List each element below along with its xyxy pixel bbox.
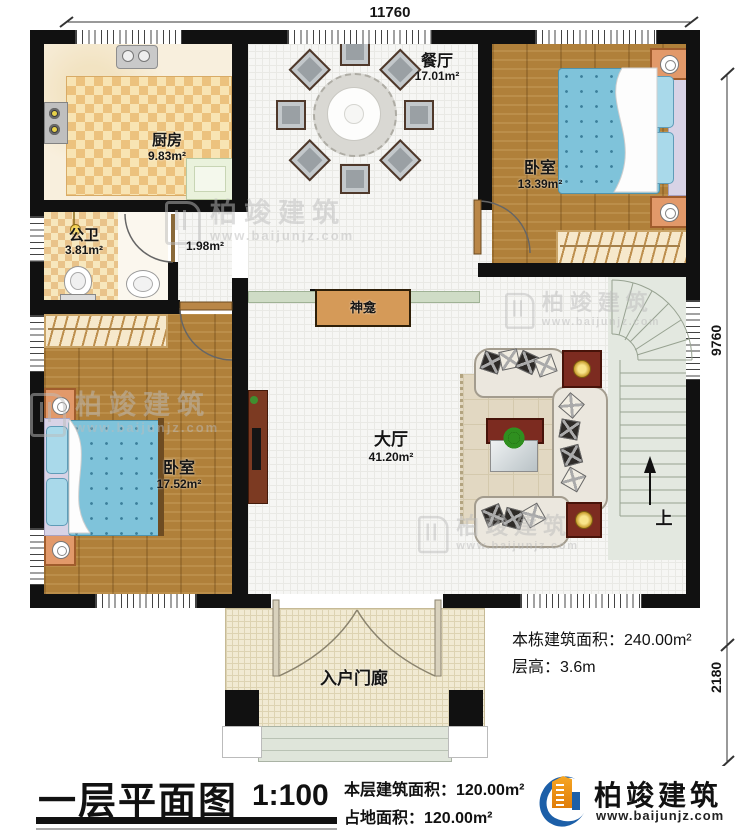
porch-door-leaf-left xyxy=(273,600,279,676)
brand-logo-icon xyxy=(538,772,588,826)
note-building-area: 本栋建筑面积：240.00m² xyxy=(512,626,692,650)
watermark-name: 柏竣建筑 xyxy=(75,392,219,419)
watermark: 柏竣建筑 www.baijunjz.com xyxy=(30,392,219,437)
watermark-logo-icon xyxy=(165,201,201,245)
bedroom-top-area: 13.39m² xyxy=(498,178,582,191)
floor-area-label: 本层建筑面积：120.00m² xyxy=(344,776,525,800)
bedroom-top-label: 卧室 xyxy=(505,160,575,178)
plan-linework xyxy=(0,0,750,766)
land-area-label: 占地面积：120.00m² xyxy=(344,804,493,828)
stairs-up-label: 上 xyxy=(650,510,678,529)
kitchen-label: 厨房 xyxy=(127,133,207,150)
note-floor-height: 层高：3.6m xyxy=(512,653,596,677)
dimension-right-porch: 2180 xyxy=(709,644,727,710)
brand-site: www.baijunjz.com xyxy=(596,808,724,823)
watermark-logo-icon xyxy=(505,292,535,328)
dining-label: 餐厅 xyxy=(407,53,467,71)
bedroom-left-area: 17.52m² xyxy=(137,478,221,491)
hallway-area: 1.98m² xyxy=(172,240,238,253)
bed-top-blanket xyxy=(614,68,657,192)
watermark-site: www.baijunjz.com xyxy=(456,538,579,553)
bedroom-left-door-leaf xyxy=(180,302,232,310)
bathroom-area: 3.81m² xyxy=(50,244,118,257)
watermark-logo-icon xyxy=(418,516,449,553)
porch-label: 入户门廊 xyxy=(294,670,414,689)
watermark-name: 柏竣建筑 xyxy=(542,292,660,314)
porch-door-arc-left xyxy=(279,610,357,676)
bedroom-left-door-arc xyxy=(180,308,232,360)
floor-plan-page: 神龛 xyxy=(0,0,750,840)
watermark-name: 柏竣建筑 xyxy=(210,200,354,227)
watermark-site: www.baijunjz.com xyxy=(542,314,660,329)
dimension-top: 11760 xyxy=(350,5,430,22)
watermark-logo-icon xyxy=(30,393,66,437)
watermark: 柏竣建筑 www.baijunjz.com xyxy=(505,292,660,329)
bedroom-left-label: 卧室 xyxy=(144,460,214,478)
brand-logo-block xyxy=(572,792,580,810)
watermark: 柏竣建筑 www.baijunjz.com xyxy=(418,515,579,553)
watermark-site: www.baijunjz.com xyxy=(75,419,219,437)
scale-label: 1:100 xyxy=(252,779,329,813)
title-underline xyxy=(36,817,337,824)
bedroom-top-door-leaf xyxy=(474,200,481,254)
watermark-name: 柏竣建筑 xyxy=(456,515,579,538)
kitchen-area: 9.83m² xyxy=(127,150,207,163)
hall-label: 大厅 xyxy=(361,431,421,450)
bedroom-top-door-arc xyxy=(478,201,530,253)
brand-logo-windows xyxy=(556,784,564,806)
porch-door-leaf-right xyxy=(435,600,441,676)
dimension-right-main: 9760 xyxy=(709,303,727,377)
porch-door-arc-right xyxy=(357,610,435,676)
hall-area: 41.20m² xyxy=(355,451,427,464)
title-underline-thin xyxy=(36,828,337,830)
dining-area: 17.01m² xyxy=(399,70,475,83)
